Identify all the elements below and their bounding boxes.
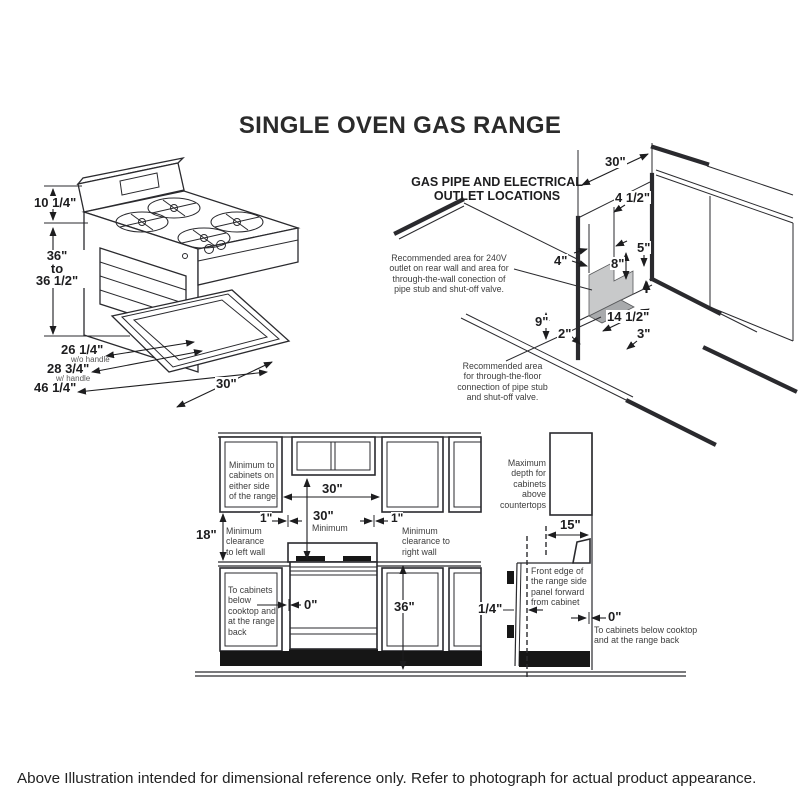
note-right-clearance: Minimum clearance to right wall [402, 526, 450, 557]
note-max-depth: Maximum depth for cabinets above counter… [488, 458, 546, 510]
note-wall-outlet: Recommended area for 240V outlet on rear… [383, 253, 515, 295]
page-title: SINGLE OVEN GAS RANGE [0, 112, 800, 140]
dim-min-height-note: Minimum [312, 523, 348, 533]
note-floor-connection: Recommended area for through-the-floor c… [454, 361, 551, 403]
dim-area-height-left: 8" [610, 257, 625, 270]
footer-disclaimer: Above Illustration intended for dimensio… [17, 770, 797, 787]
note-below-cooktop: To cabinets below cooktop and at the ran… [228, 585, 276, 637]
dim-floor-height: 9" [534, 315, 549, 328]
dim-min-height: 30" [312, 509, 335, 522]
gas-pipe-heading: GAS PIPE AND ELECTRICAL OUTLET LOCATIONS [407, 175, 587, 203]
dim-opening-width: 30" [321, 482, 344, 495]
dim-left-clearance: 1" [260, 512, 272, 524]
dim-floor-width: 14 1/2" [606, 310, 650, 323]
dim-range-height: 36" to 36 1/2" [28, 250, 86, 288]
dim-floor-corner: 2" [557, 327, 572, 340]
dim-right-clearance: 1" [391, 512, 403, 524]
dim-upper-cabinet-height: 18" [195, 528, 218, 541]
dim-alcove-width: 30" [604, 155, 627, 168]
dim-range-width: 30" [215, 377, 238, 390]
dim-zero-clearance: 0" [303, 598, 318, 611]
note-front-edge: Front edge of the range side panel forwa… [531, 566, 587, 608]
note-min-to-cabinets: Minimum to cabinets on either side of th… [229, 460, 279, 502]
dim-depth-door-open: 46 1/4" [33, 381, 77, 394]
spec-sheet-page: SINGLE OVEN GAS RANGE 10 1/4" 36" to 36 … [0, 0, 800, 800]
dim-outlet-offset: 4 1/2" [614, 191, 651, 204]
dim-counter-height: 36" [393, 600, 416, 613]
dim-zero-clearance-side: 0" [607, 610, 622, 623]
dim-wall-left-offset: 4" [553, 254, 568, 267]
dim-cabinet-depth: 15" [559, 518, 582, 531]
note-left-clearance: Minimum clearance to left wall [226, 526, 265, 557]
dim-backsplash-height: 10 1/4" [33, 196, 77, 209]
note-zero-side: To cabinets below cooktop and at the ran… [594, 625, 697, 646]
dim-area-height-right: 5" [636, 241, 651, 254]
dim-floor-depth: 3" [636, 327, 651, 340]
dim-panel-offset: 1/4" [477, 602, 503, 615]
